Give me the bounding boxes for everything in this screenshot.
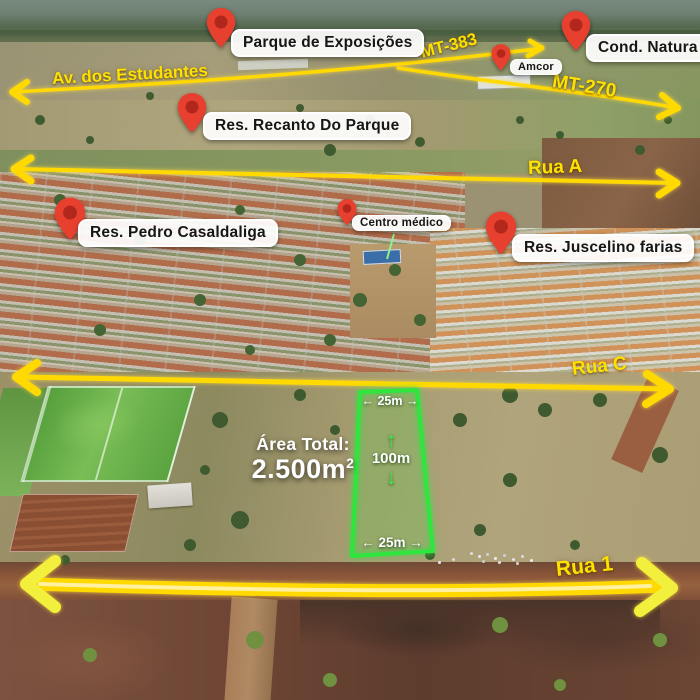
road-overlay: [0, 0, 700, 700]
up-arrow-glyph: ↑: [386, 430, 397, 451]
map-pin-icon: [491, 44, 511, 71]
aerial-photo-scene: Parque de Exposições Cond. Natura Amcor …: [0, 0, 700, 700]
plot-width-top: ← 25m →: [350, 394, 430, 408]
label-res-recanto: Res. Recanto Do Parque: [203, 112, 411, 140]
left-arrow-glyph: ←: [362, 394, 375, 408]
label-res-pedro-casaldaliga: Res. Pedro Casaldaliga: [78, 219, 278, 247]
squared-sup: 2: [346, 455, 354, 471]
label-res-juscelino: Res. Juscelino farias: [512, 234, 694, 262]
area-total-label: Área Total:: [238, 434, 368, 455]
area-total-value: 2.500m2: [238, 455, 368, 483]
label-cond-natura: Cond. Natura: [586, 34, 700, 62]
label-parque-exposicoes: Parque de Exposições: [231, 29, 424, 57]
down-arrow-glyph: ↓: [386, 467, 397, 488]
label-centro-medico: Centro médico: [352, 215, 451, 231]
right-arrow-glyph: →: [409, 535, 423, 550]
left-arrow-glyph: ←: [361, 535, 375, 550]
right-arrow-glyph: →: [406, 394, 419, 408]
plot-width-bottom: ← 25m →: [348, 535, 436, 550]
area-total-block: Área Total: 2.500m2: [238, 434, 368, 483]
plot-depth: ↑ 100m ↓: [360, 430, 422, 488]
label-amcor: Amcor: [510, 59, 562, 75]
clinic-pointer-line: [387, 234, 394, 259]
road-name-rua-a: Rua A: [528, 156, 583, 180]
road-line-mt270: [398, 68, 678, 117]
